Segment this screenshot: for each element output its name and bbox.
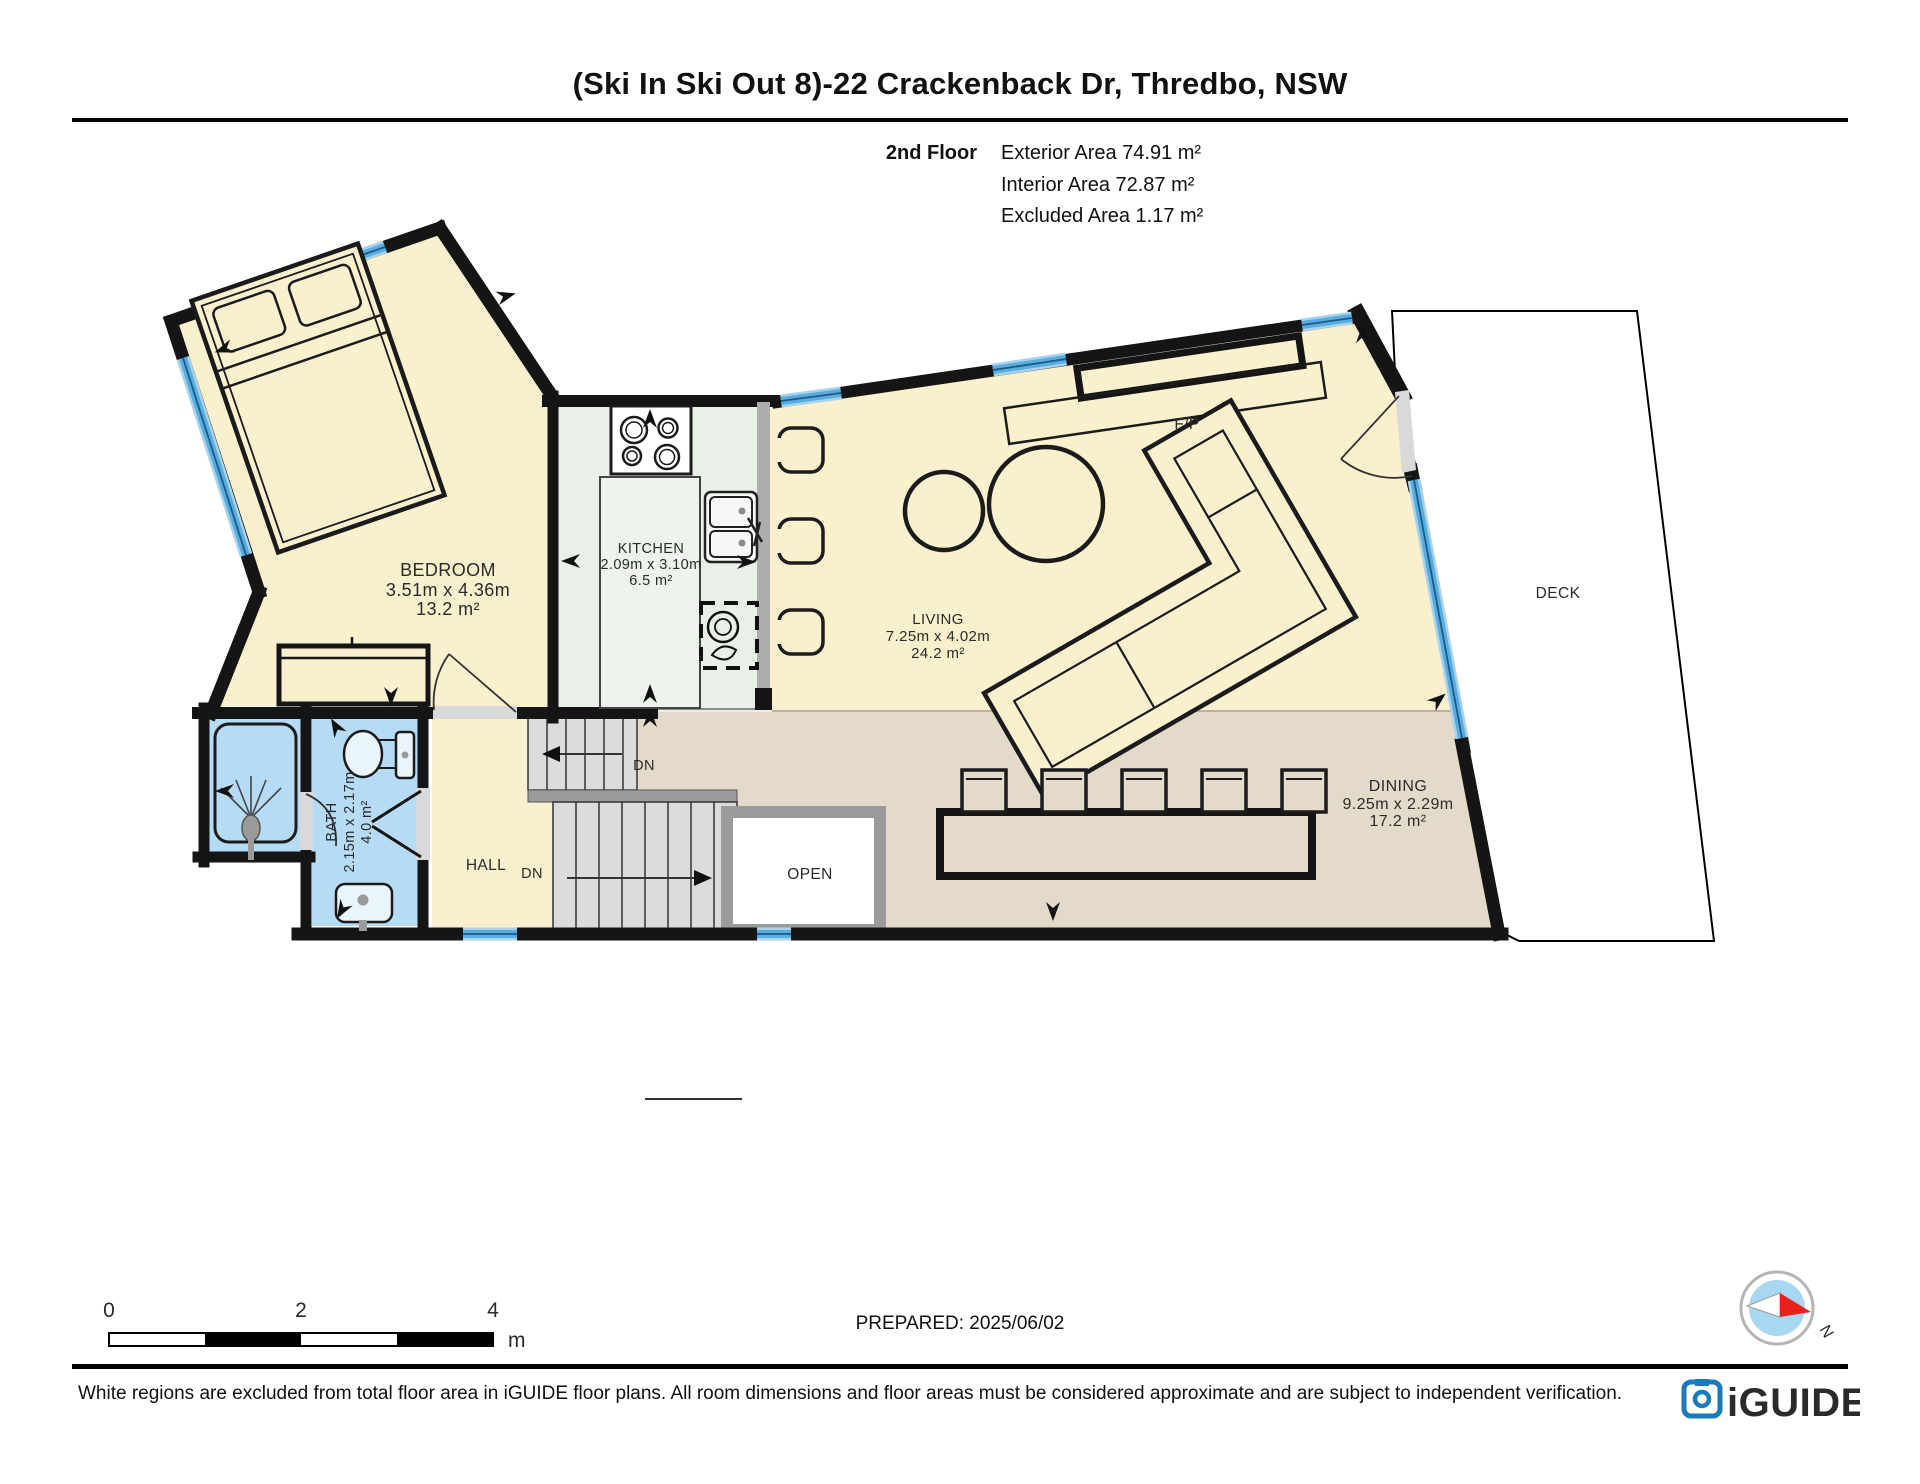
disclaimer-text: White regions are excluded from total fl… [78, 1383, 1778, 1405]
title-rule [72, 118, 1848, 122]
fireplace-label: F/P [1174, 416, 1199, 433]
brand-text: iGUIDE [1727, 1381, 1860, 1424]
bath-label: BATH [324, 802, 340, 841]
bath-dims: 2.15m x 2.17m [342, 771, 358, 872]
stairs-banister [528, 790, 737, 802]
dining-dims: 9.25m x 2.29m [1342, 796, 1453, 813]
stairs-lower [553, 802, 737, 930]
stairs-upper [528, 717, 637, 790]
bar-stools [775, 428, 823, 654]
living-dims: 7.25m x 4.02m [886, 628, 990, 645]
kitchen-area: 6.5 m² [629, 573, 673, 589]
open-label: OPEN [787, 866, 833, 883]
interior-area: Interior Area 72.87 m² [1001, 170, 1203, 202]
dining-area: 17.2 m² [1369, 813, 1426, 830]
compass-north-label: N [1816, 1323, 1837, 1342]
kitchen-label: KITCHEN [618, 541, 684, 557]
kitchen-sink [705, 492, 762, 562]
bath-door-opening [416, 788, 430, 860]
exterior-area: Exterior Area 74.91 m² [1001, 138, 1203, 170]
footer-rule [72, 1364, 1848, 1369]
dining-label: DINING [1369, 778, 1427, 795]
prepared-date: PREPARED: 2025/06/02 [0, 1313, 1920, 1335]
bedroom-door-opening [433, 706, 517, 719]
dining-table [940, 812, 1312, 876]
floor-info: 2nd Floor Exterior Area 74.91 m² Interio… [700, 138, 1203, 233]
excluded-area: Excluded Area 1.17 m² [1001, 201, 1203, 233]
bath-area: 4.0 m² [359, 800, 375, 844]
shower-door-opening [300, 792, 313, 850]
bedroom-area: 13.2 m² [416, 599, 480, 619]
floor-plan-page: BEDROOM 3.51m x 4.36m 13.2 m² KITCHEN 2.… [0, 0, 1920, 1484]
hall-label: HALL [466, 857, 506, 874]
living-label: LIVING [912, 611, 964, 628]
kitchen-dims: 2.09m x 3.10m [600, 557, 701, 573]
floor-label: 2nd Floor [700, 138, 1001, 233]
deck-label: DECK [1536, 585, 1581, 602]
iguide-logo: iGUIDE [1680, 1374, 1860, 1424]
living-area: 24.2 m² [911, 645, 965, 662]
dn-lower-label: DN [521, 866, 543, 882]
kitchen-island [600, 477, 700, 708]
camera-icon [1684, 1382, 1720, 1416]
page-title: (Ski In Ski Out 8)-22 Crackenback Dr, Th… [0, 66, 1920, 102]
closet [279, 637, 428, 704]
compass: N [1735, 1266, 1845, 1356]
bedroom-dims: 3.51m x 4.36m [386, 580, 510, 600]
dn-upper-label: DN [633, 758, 655, 774]
round-table-large [989, 447, 1103, 561]
bedroom-label: BEDROOM [400, 560, 496, 580]
round-table-small [905, 472, 983, 550]
